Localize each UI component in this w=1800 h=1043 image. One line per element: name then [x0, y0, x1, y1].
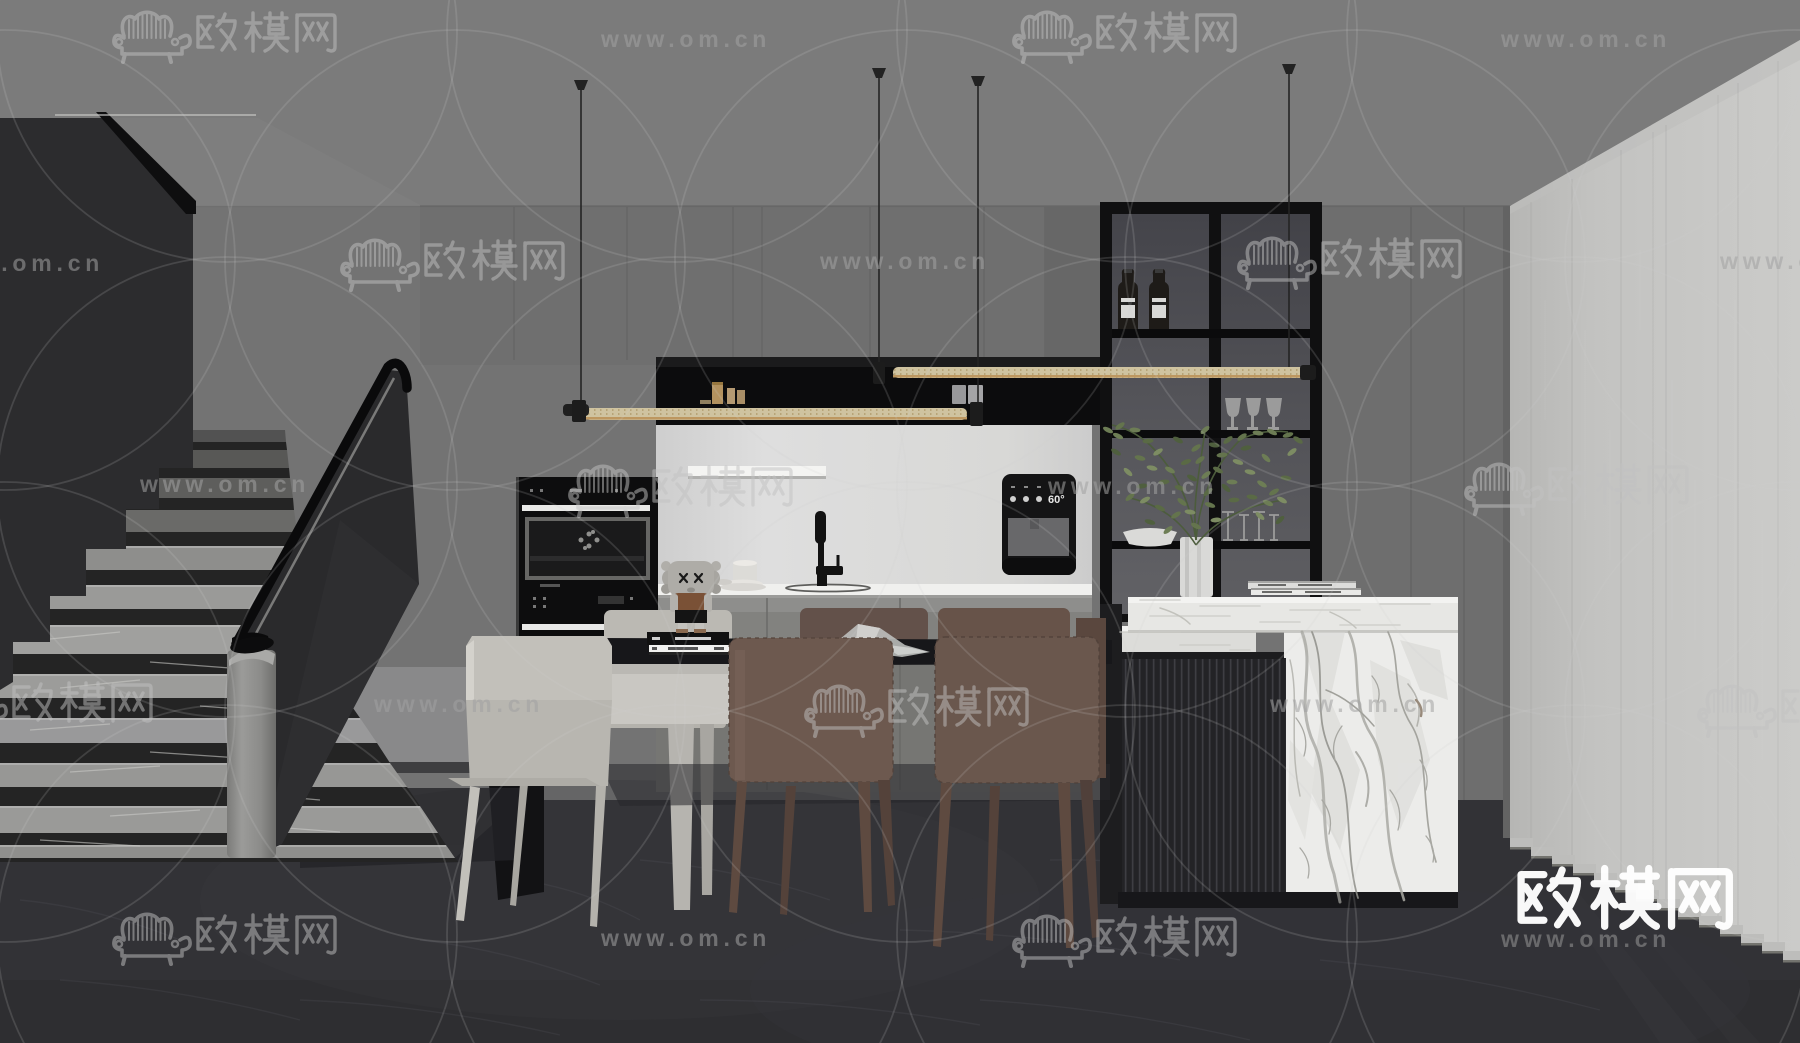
- svg-text:www.om.cn: www.om.cn: [1047, 473, 1218, 499]
- svg-text:www.om.cn: www.om.cn: [1500, 926, 1671, 952]
- svg-text:www.om.cn: www.om.cn: [139, 471, 310, 497]
- svg-text:www.om.cn: www.om.cn: [0, 250, 104, 276]
- svg-text:www.om.cn: www.om.cn: [819, 248, 990, 274]
- svg-text:www.om.cn: www.om.cn: [373, 691, 544, 717]
- svg-text:www.om.cn: www.om.cn: [600, 925, 771, 951]
- svg-text:www.om.cn: www.om.cn: [600, 26, 771, 52]
- svg-text:www.om.cn: www.om.cn: [1719, 248, 1800, 274]
- svg-text:www.om.cn: www.om.cn: [1269, 691, 1440, 717]
- svg-text:www.om.cn: www.om.cn: [1500, 26, 1671, 52]
